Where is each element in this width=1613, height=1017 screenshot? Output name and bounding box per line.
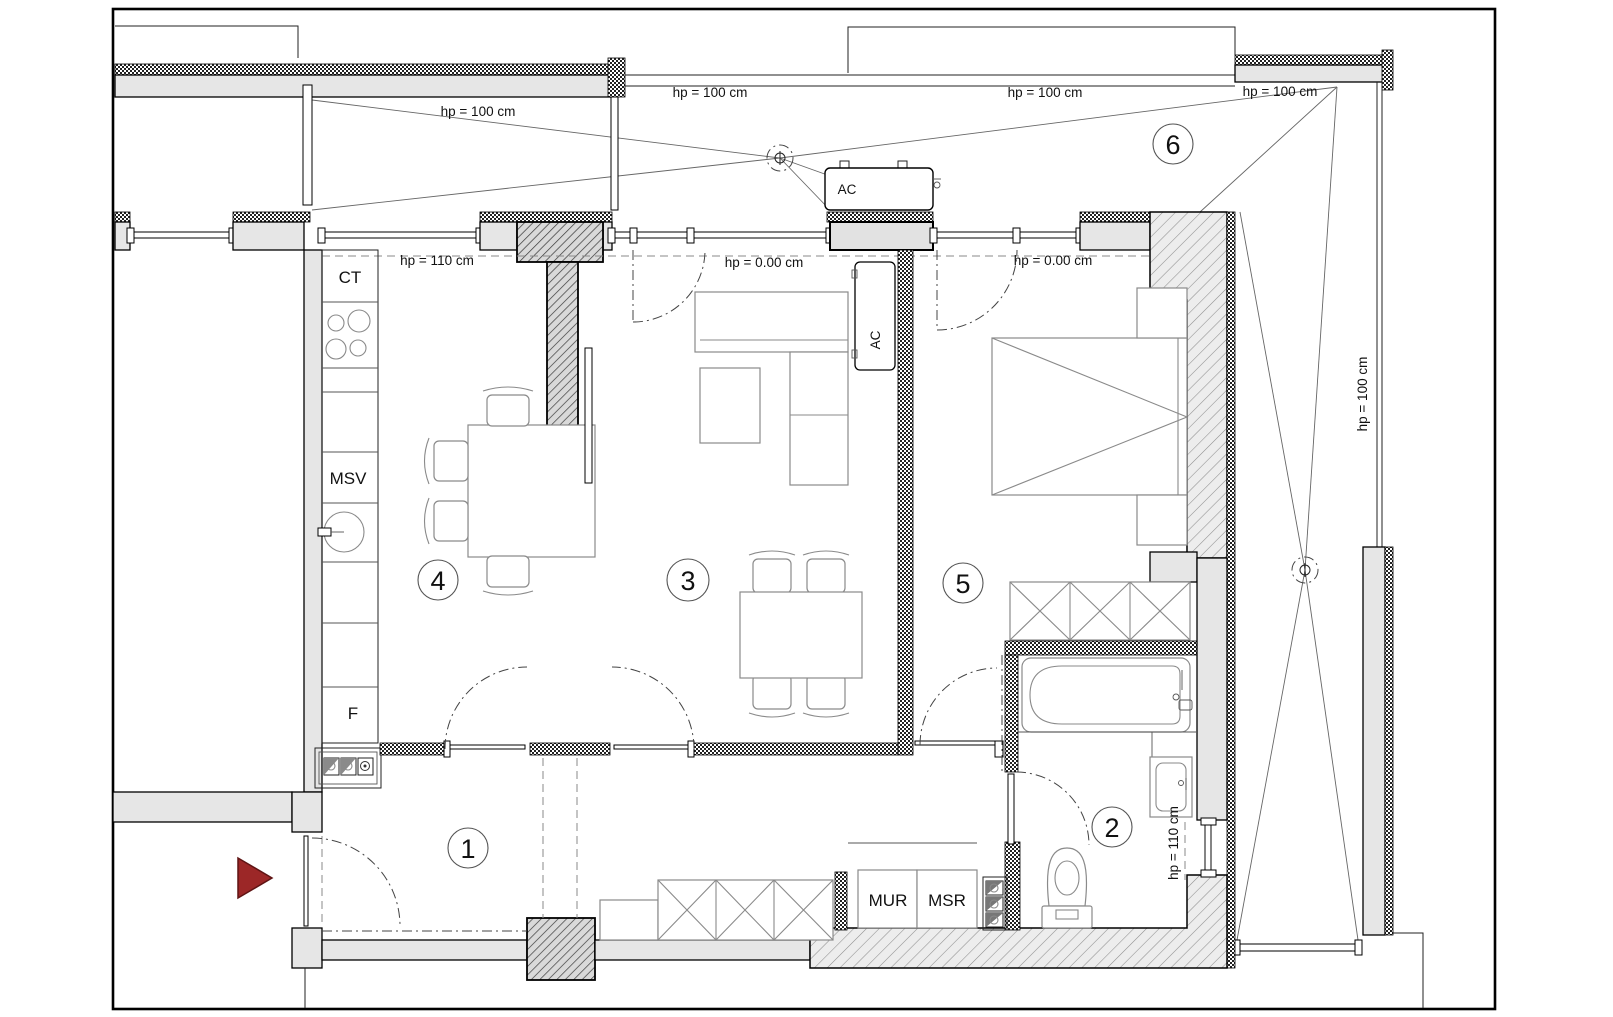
room-badge-6: 6	[1153, 124, 1193, 164]
washer-label: MUR	[869, 891, 908, 910]
toilet	[1042, 848, 1092, 928]
bathroom-right-wall	[1197, 558, 1227, 820]
svg-text:5: 5	[955, 569, 970, 599]
laundry-wall	[835, 872, 847, 930]
bathtub	[1022, 658, 1192, 732]
hp-label: hp = 100 cm	[1243, 84, 1318, 99]
window-cap	[687, 228, 694, 243]
svg-text:3: 3	[680, 566, 695, 596]
window-cap	[608, 228, 615, 243]
upper-floor-outline-left	[115, 26, 298, 58]
bathroom-door-leaf	[1008, 774, 1014, 844]
vent-shaft	[983, 877, 1007, 930]
stove-icon	[326, 310, 370, 359]
exterior-insulation-right	[1227, 212, 1235, 968]
living-dining-table	[740, 551, 862, 717]
fridge-label: F	[348, 704, 358, 723]
door-swing-bedroom	[920, 668, 997, 745]
hp-label: hp = 100 cm	[673, 85, 748, 100]
hp-label: hp = 0.00 cm	[1014, 253, 1092, 268]
ac-indoor-label: AC	[868, 330, 883, 349]
window-cap	[1013, 228, 1020, 243]
living-room: AC hp = 0.00 cm 3	[585, 250, 895, 717]
balcony-door-swing	[633, 250, 705, 322]
upper-floor-outline-right	[848, 27, 1235, 73]
window-cap	[318, 228, 325, 243]
svg-text:2: 2	[1104, 813, 1119, 843]
hp-label: hp = 0.00 cm	[725, 255, 803, 270]
window-cap	[1201, 818, 1216, 825]
left-side	[113, 250, 400, 1008]
wardrobe	[1010, 582, 1190, 640]
nightstand	[1137, 495, 1187, 545]
parapet-insulation-right	[1235, 55, 1385, 65]
drain-icon	[1292, 557, 1318, 583]
side-parapet-insulation	[1385, 547, 1393, 935]
balcony-door-swing	[937, 250, 1017, 330]
room-badge-5: 5	[943, 563, 983, 603]
sliding-door-leaf	[585, 348, 592, 483]
bathroom-left-wall	[1005, 655, 1018, 772]
window-cap	[1201, 870, 1216, 877]
hp-label-vertical: hp = 110 cm	[1166, 806, 1181, 880]
cabinet	[600, 900, 658, 940]
entry-door-swing	[312, 838, 400, 926]
coffee-table	[700, 368, 760, 443]
side-parapet	[1363, 547, 1385, 935]
floor-plan: AC hp = 100 cm hp = 100 cm hp = 100 cm h…	[0, 0, 1613, 1017]
bathroom-top-wall	[1005, 641, 1197, 655]
ac-outdoor-label: AC	[838, 182, 857, 197]
electrical-panel	[315, 748, 381, 788]
balcony-divider-screen	[303, 85, 312, 205]
party-wall-left	[304, 250, 322, 792]
room-badge-1: 1	[448, 828, 488, 868]
svg-text:1: 1	[460, 834, 475, 864]
window-cap	[1355, 940, 1362, 955]
hp-label: hp = 100 cm	[1008, 85, 1083, 100]
nightstand	[1137, 288, 1187, 338]
window-cap	[127, 228, 134, 243]
countertop-label: CT	[339, 268, 362, 287]
hall-closet	[658, 880, 833, 940]
lower-step-outline	[1363, 933, 1423, 1008]
window-cap	[630, 228, 637, 243]
room-badge-2: 2	[1092, 807, 1132, 847]
parapet-cap-right	[1382, 50, 1393, 90]
door-swing-bathroom	[1016, 772, 1089, 845]
duct-niche	[1150, 552, 1197, 582]
door-swing-living	[612, 667, 694, 749]
partition-living-bedroom	[898, 250, 913, 755]
hp-label: hp = 100 cm	[441, 104, 516, 119]
hp-label-vertical: hp = 100 cm	[1355, 357, 1370, 432]
window-cap	[930, 228, 937, 243]
svg-text:4: 4	[430, 566, 445, 596]
room-badge-3: 3	[667, 559, 709, 601]
dryer-label: MSR	[928, 891, 966, 910]
door-pier	[292, 792, 322, 832]
parapet-left	[115, 75, 612, 97]
dishwasher-label: MSV	[330, 469, 368, 488]
parapet-cap-left	[608, 58, 625, 97]
ac-outdoor-unit: AC	[825, 161, 941, 210]
svg-text:6: 6	[1165, 130, 1180, 160]
door-pier	[292, 928, 322, 968]
entry-door-leaf	[304, 836, 308, 926]
column	[527, 918, 595, 980]
hp-label: hp = 110 cm	[400, 253, 474, 268]
parapet-insulation-left	[115, 64, 612, 75]
bed	[992, 288, 1187, 545]
neighbor-wall	[113, 792, 292, 822]
ac-indoor-unit: AC	[852, 262, 895, 370]
balcony-divider-post	[611, 97, 618, 210]
entry-arrow	[238, 858, 272, 898]
kitchen-sink-icon	[318, 512, 364, 552]
parapet-right	[1235, 65, 1385, 82]
door-swing-kitchen	[445, 667, 527, 749]
room-badge-4: 4	[418, 560, 458, 600]
